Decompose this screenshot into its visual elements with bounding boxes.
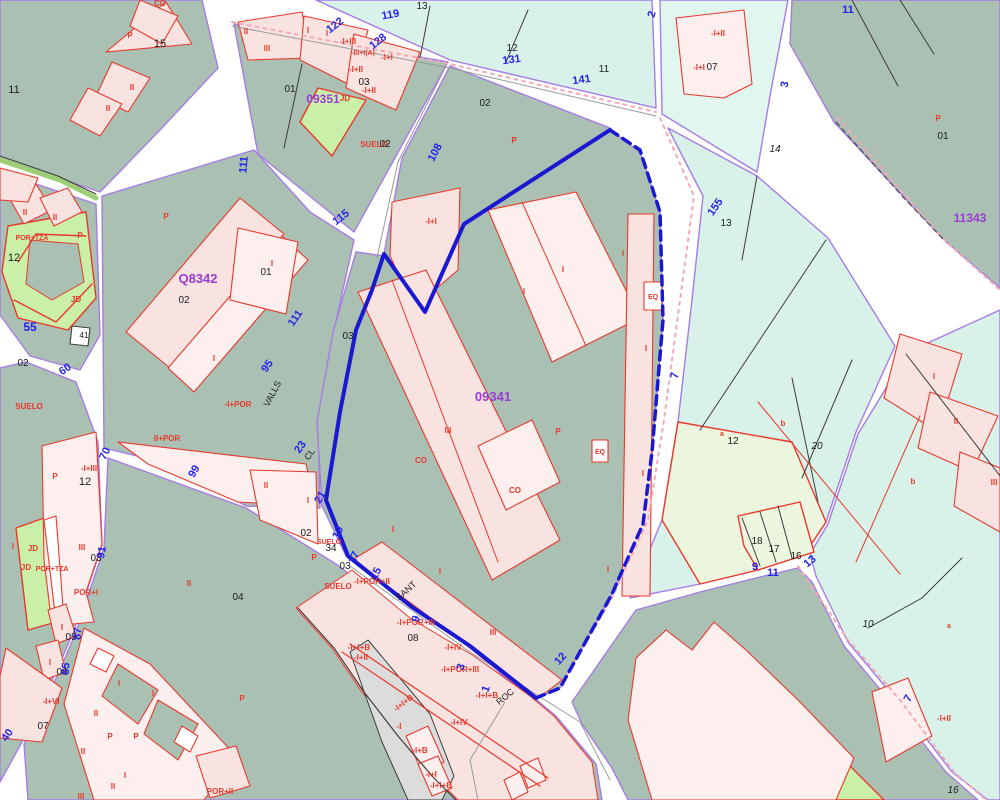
map-label-i: I [307,26,309,35]
map-label--i-ii: -I+II [349,65,363,74]
map-label-08: 08 [407,633,419,644]
map-label-a: a [720,431,724,438]
map-label-18: 18 [751,536,763,547]
map-label-i: I [562,265,564,274]
map-label-ii: II [187,579,191,588]
map-label--i-ii: -I+II [937,714,951,723]
map-label-13: 13 [720,218,732,229]
map-label-i: I [124,771,126,780]
map-label-16: 16 [790,551,802,562]
map-label--i-vi: -I+VI [42,697,59,706]
map-label-ii: II [106,104,110,113]
map-label--i-i: -I+I [425,217,437,226]
map-label-eq: EQ [595,449,606,456]
map-label-por-i: POR+I [74,588,98,597]
map-label--i-i: -I+I [425,770,437,779]
map-label-p: P [52,472,58,481]
map-label-02: 02 [379,139,391,150]
map-label-04: 04 [232,592,244,603]
map-label-p: P [311,553,317,562]
map-label--i-i: -I+I [381,53,393,62]
map-label-i: I [933,372,935,381]
map-label-ii: II [111,782,115,791]
map-label-02: 02 [479,98,491,109]
map-label-131: 131 [502,53,522,67]
map-label-por-ii: POR+II [207,787,233,796]
map-label-41: 41 [80,331,89,340]
map-label-por-tza: POR+TZA [36,566,69,573]
map-label-i: I [642,469,644,478]
map-label-i: I [622,249,624,258]
map-label-i: I [607,565,609,574]
map-label-i: I [439,567,441,576]
map-label-i: I [307,496,309,505]
map-label-ii: II [954,417,958,426]
map-label-141: 141 [572,73,592,87]
map-label-p: P [555,427,561,436]
map-label--i-iii: -I+III [340,37,356,46]
map-label-11: 11 [8,84,19,96]
map-label-ii-por: II+POR [154,434,181,443]
map-label--i-b: -I+B [412,746,428,755]
map-label-ii: II [81,747,85,756]
map-label-p: P [239,694,245,703]
map-label-jd: JD [71,295,81,304]
map-label-p: P [511,136,517,145]
map-label-b: b [781,419,786,428]
map-label-iii: III [78,792,85,800]
map-label-13: 13 [416,1,428,12]
map-label-ii: II [130,83,134,92]
map-label-por-tza: POR+TZA [16,235,49,242]
map-label-suelo: SUELO [15,402,43,411]
map-label--i-ii: -I+II [354,653,368,662]
map-label-34: 34 [325,543,337,554]
map-label-01: 01 [937,131,949,142]
map-label--i-iv: -I+IV [444,643,462,652]
map-label-14: 14 [769,144,781,155]
map-label-iii: III [490,628,497,637]
map-label-16: 16 [947,785,959,796]
map-label-ii: II [264,481,268,490]
map-label--i-por-ii: -I+POR+II [354,577,390,586]
map-label-jd: JD [21,563,31,572]
cadastral-map[interactable]: COP1511IIIIIIIIIII11912212813-I+III-III+… [0,0,1000,800]
map-label-i: I [213,354,215,363]
map-label-01: 01 [284,84,296,95]
map-label-20: 20 [810,441,823,452]
map-label-i: I [645,344,647,353]
map-label-12: 12 [727,436,739,447]
map-label-03: 03 [342,331,354,342]
map-label-iii: III [445,426,452,435]
map-label-i: I [152,689,154,698]
map-label-p: P [133,732,139,741]
map-label-co: CO [415,456,427,465]
map-label--i-i: -I+I [693,63,705,72]
map-label-ii: II [23,208,27,217]
map-label-87: 87 [72,627,85,640]
map-label-p: P [107,732,113,741]
map-label-10: 10 [862,619,874,630]
map-label--i-ii: -I+II [362,86,376,95]
map-label-ii: II [244,27,248,36]
map-label-co: CO [154,0,166,8]
map-label-02: 02 [17,358,29,369]
map-label-i: I [392,525,394,534]
map-label-eq: EQ [648,294,659,301]
map-label--i-por: -I+POR [225,400,252,409]
map-label-i: I [61,623,63,632]
map-label-iii: III [264,44,271,53]
map-label--i-i-b: -I+I+B [430,781,452,790]
map-label-01: 01 [260,267,272,278]
map-label-15: 15 [154,38,166,50]
map-label-iii: III [79,543,86,552]
map-label-b: b [911,477,916,486]
map-label-p: P [935,114,941,123]
map-label-07: 07 [37,721,49,732]
map-label-jd: JD [340,94,350,103]
map-label-ii: II [53,213,57,222]
map-label-09341: 09341 [475,389,511,404]
map-label-a: a [947,623,951,630]
map-label-iii: III [991,478,998,487]
map-label-suelo: SUELO [324,582,352,591]
map-label-ii: II [94,709,98,718]
map-label-09351: 09351 [306,92,340,106]
map-label-55: 55 [23,320,37,334]
map-label-12: 12 [79,476,91,488]
map-label-p: P [163,212,169,221]
map-label-02: 02 [300,528,312,539]
map-label--i: -I [397,722,402,731]
map-label--i-iii: -I+III [81,464,97,473]
map-label-p: P [77,231,83,240]
map-label-07: 07 [706,62,718,73]
map-label-85: 85 [60,662,73,675]
map-label-91: 91 [95,545,109,559]
map-label-11343: 11343 [954,211,987,225]
map-label--iii-i-a-: -III+I(A) [351,50,375,57]
map-label-11: 11 [767,567,779,579]
map-label-111: 111 [237,156,250,174]
map-label-12: 12 [8,252,20,264]
map-label-jd: JD [28,544,38,553]
map-label-i: I [12,542,14,551]
map-label-i: I [49,658,51,667]
map-label-i: I [118,679,120,688]
cadastral-map-viewport[interactable]: COP1511IIIIIIIIIII11912212813-I+III-III+… [0,0,1000,800]
map-label-q8342: Q8342 [178,271,217,286]
map-label-11: 11 [599,64,610,75]
map-label--i-iv: -I+IV [450,718,468,727]
map-label-02: 02 [178,295,190,306]
map-label-co: CO [509,486,521,495]
map-label-11: 11 [842,4,854,16]
map-label-p: P [127,31,133,40]
map-label--i-ii: -I+II [711,29,725,38]
building-footprint [676,10,752,98]
map-label-17: 17 [768,544,780,555]
map-label-9: 9 [752,561,758,573]
map-label-i: I [523,287,525,296]
map-label--i-i-b: -I+I+B [348,643,370,652]
